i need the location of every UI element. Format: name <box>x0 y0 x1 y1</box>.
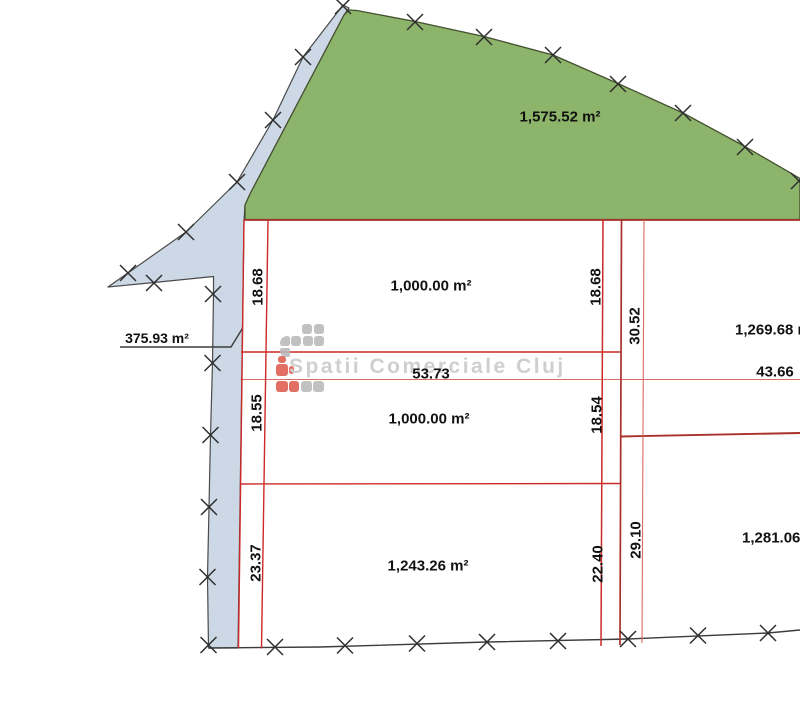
area-label: 1,000.00 m² <box>391 279 472 294</box>
dimension-label: 18.68 <box>250 268 265 306</box>
dimension-label: 18.55 <box>250 394 265 432</box>
dimension-label: 29.10 <box>629 521 644 559</box>
plan-labels: 1,575.52 m²375.93 m²1,000.00 m²1,000.00 … <box>0 0 800 720</box>
dimension-label: 22.40 <box>591 545 606 583</box>
dimension-label: 30.52 <box>628 307 643 345</box>
area-label: 1,281.06 m² <box>742 531 800 546</box>
dimension-label: 18.54 <box>589 396 604 434</box>
area-label: 1,575.52 m² <box>520 110 601 125</box>
dimension-label: 43.66 <box>756 365 794 380</box>
area-label: 1,269.68 m² <box>735 323 800 338</box>
area-label: 1,000.00 m² <box>389 412 470 427</box>
area-label: 375.93 m² <box>125 331 189 345</box>
cadastral-plan: Spatii Comerciale Cluj 1,575.52 m²375.93… <box>0 0 800 720</box>
area-label: 1,243.26 m² <box>388 559 469 574</box>
dimension-label: 53.73 <box>412 366 450 381</box>
dimension-label: 23.37 <box>249 544 264 582</box>
dimension-label: 18.68 <box>589 268 604 306</box>
